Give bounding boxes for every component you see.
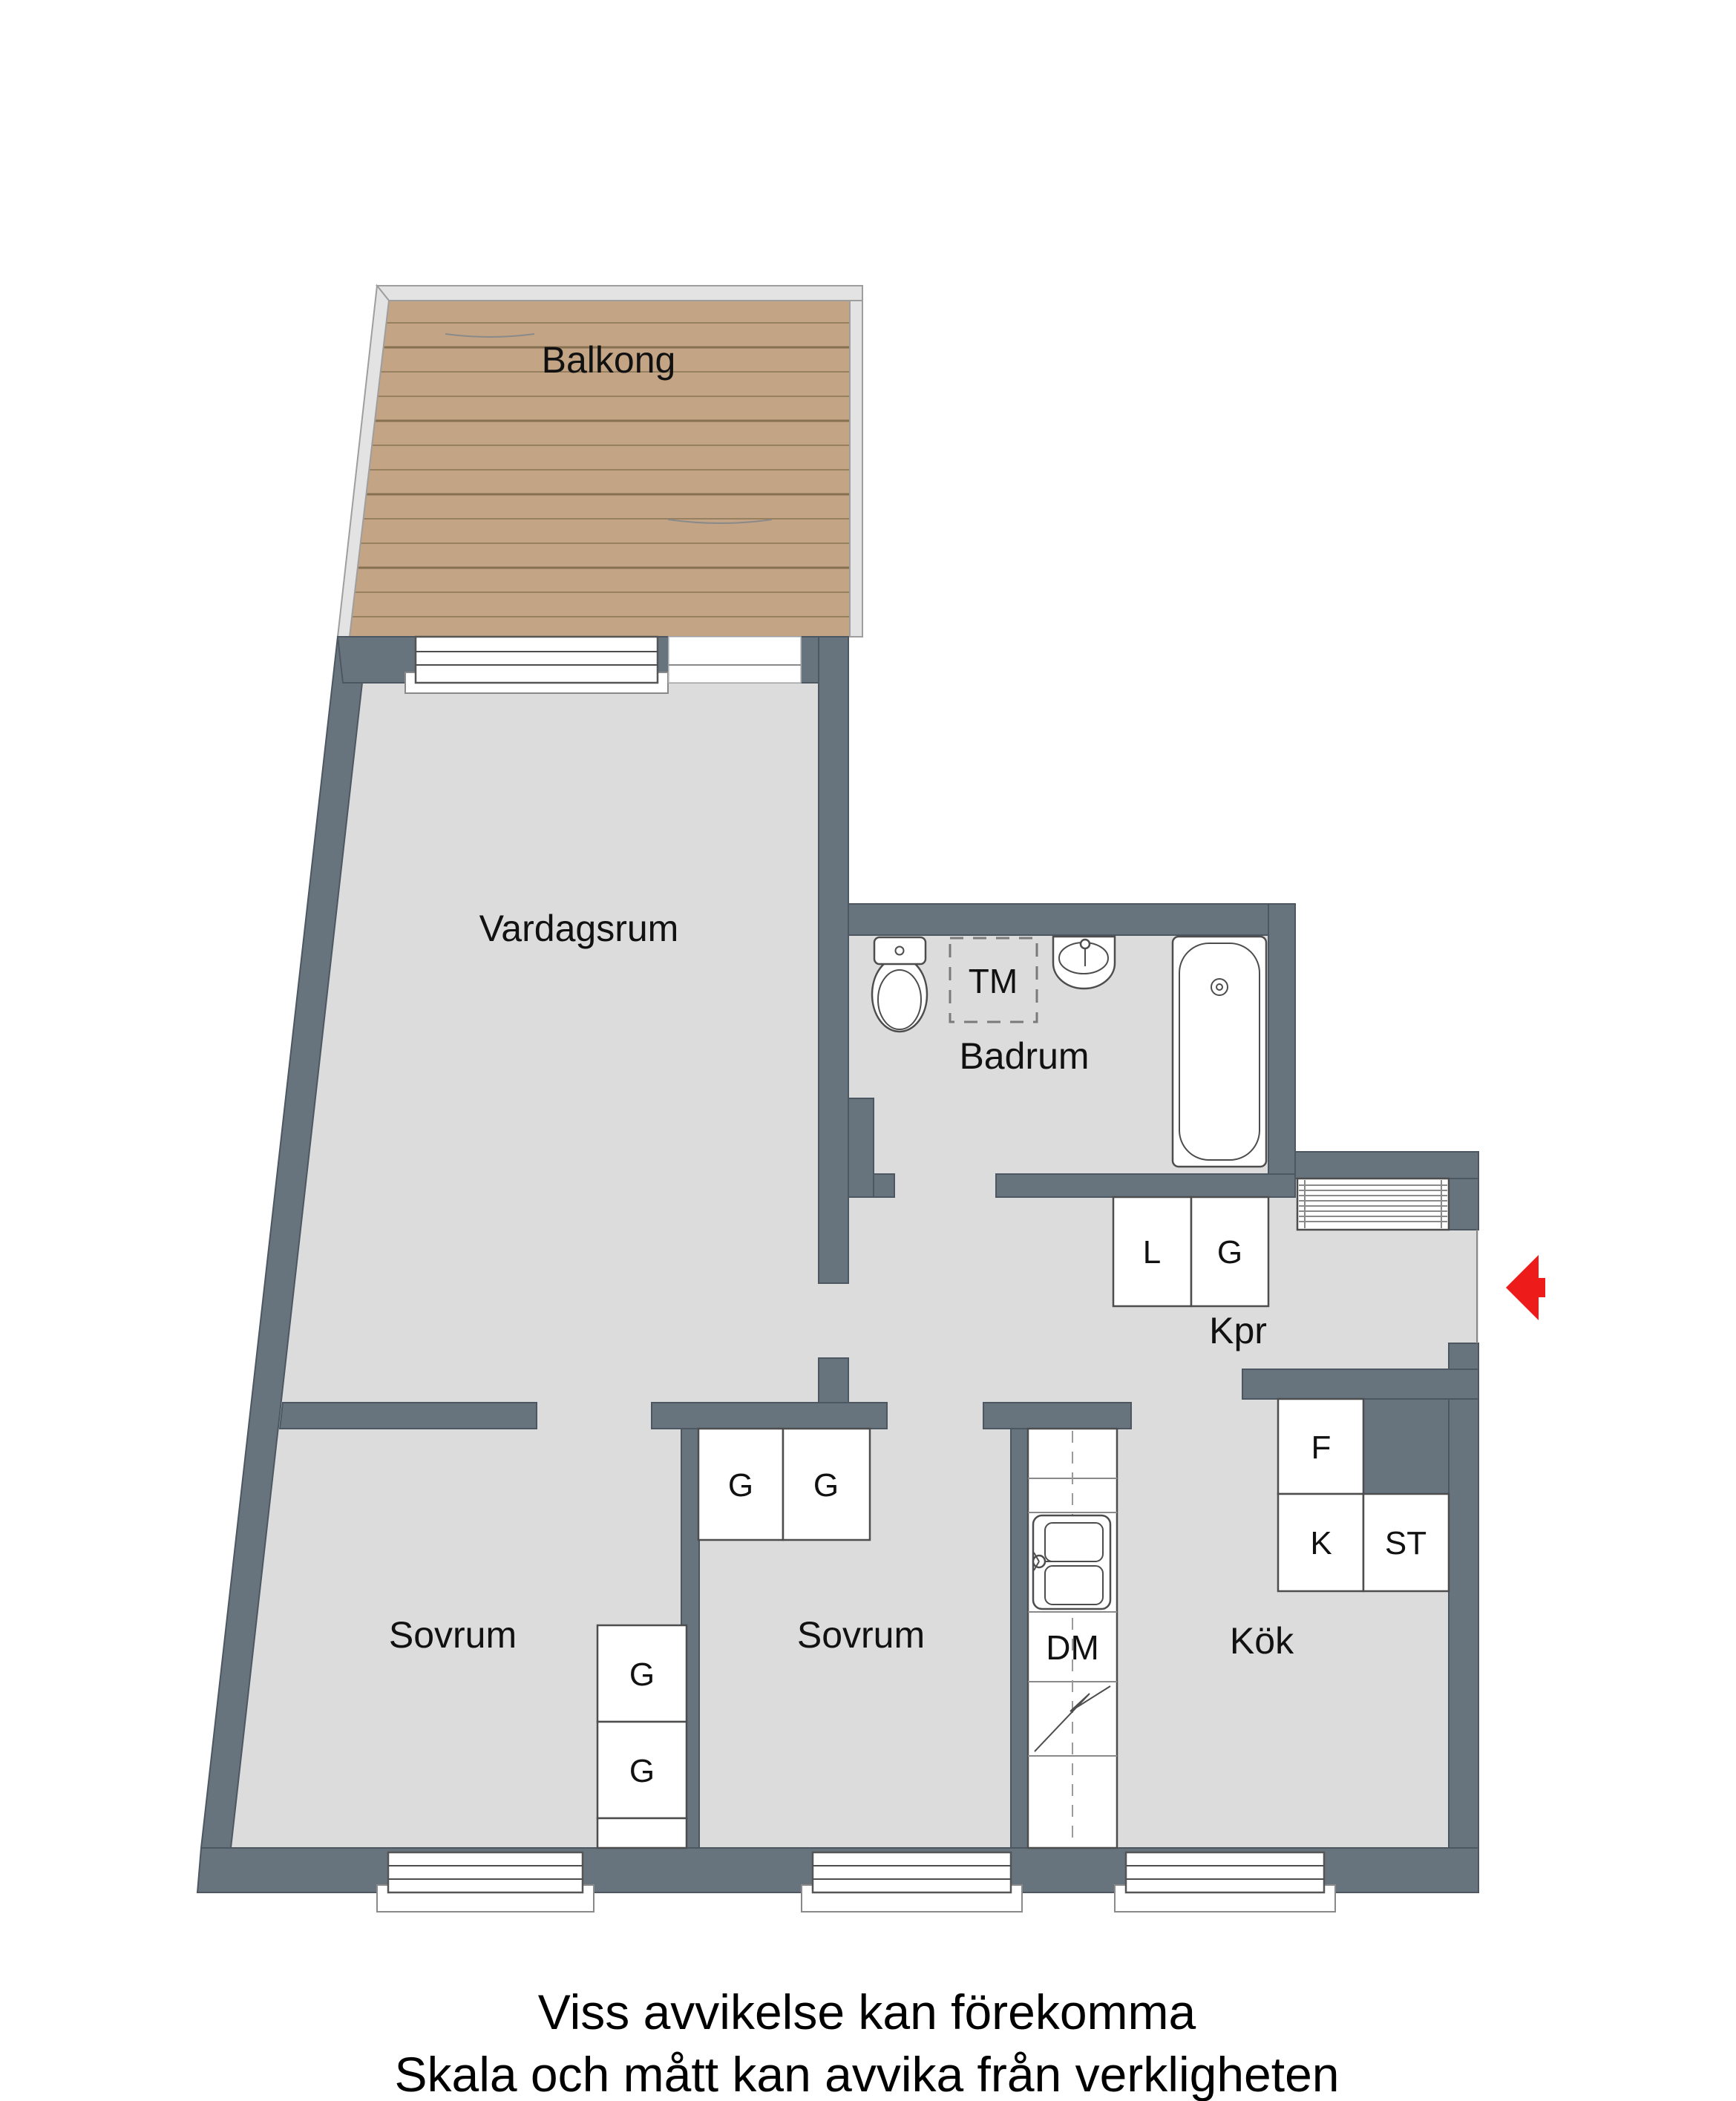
hallway-label: Kpr	[1209, 1310, 1267, 1351]
wall-hall-bedroom2	[652, 1403, 887, 1429]
wall-bathroom-top	[848, 904, 1295, 935]
wall-right-of-grille	[1449, 1179, 1478, 1230]
wall-livingroom-bedroom1	[280, 1403, 537, 1429]
fridge-label: F	[1311, 1429, 1332, 1466]
wardrobe-label-bedroom2-left: G	[728, 1467, 753, 1504]
wall-kitchen-corner-block	[1363, 1399, 1449, 1494]
bedroom1-label: Sovrum	[389, 1614, 517, 1656]
bathroom-sink-icon	[1053, 937, 1115, 989]
kitchen-label: Kök	[1230, 1620, 1294, 1662]
wardrobe-label-bedroom1-top: G	[629, 1656, 655, 1693]
ventilation-grille	[1297, 1179, 1449, 1230]
wall-hall-top-right	[1295, 1152, 1478, 1179]
livingroom-label: Vardagsrum	[479, 908, 679, 949]
livingroom-window	[416, 637, 658, 683]
linen-closet-label: L	[1143, 1234, 1161, 1271]
disclaimer-line1: Viss avvikelse kan förekomma	[538, 1984, 1196, 2039]
toilet-icon	[872, 937, 927, 1032]
wall-bathroom-stub	[848, 1098, 874, 1197]
wardrobe-filler-bedroom1	[597, 1818, 687, 1848]
washing-machine-label: TM	[969, 962, 1018, 1000]
kitchen-sink-icon	[1033, 1515, 1110, 1609]
balcony-railing-right	[850, 301, 862, 637]
wall-right-lower	[1449, 1343, 1478, 1892]
wall-bathroom-stub-step	[874, 1174, 894, 1197]
balcony	[327, 286, 862, 637]
wall-kitchen-column-left	[1011, 1429, 1028, 1848]
cleaning-closet-label: ST	[1385, 1525, 1427, 1561]
bedroom2-window	[813, 1852, 1011, 1892]
disclaimer-line2: Skala och mått kan avvika från verklighe…	[395, 2047, 1340, 2101]
bathroom-label: Badrum	[959, 1035, 1089, 1077]
wall-bathroom-right	[1268, 904, 1295, 1179]
wall-bathroom-bottom	[996, 1174, 1295, 1197]
wardrobe-label-bedroom2-right: G	[813, 1467, 839, 1504]
bedroom2-label: Sovrum	[797, 1614, 925, 1656]
floorplan-drawing: Balkong Vardagsrum Badrum TM Kpr Sovrum …	[0, 0, 1736, 2101]
wall-kitchen-top	[1242, 1369, 1478, 1399]
wall-kitchen-column-top	[983, 1403, 1131, 1429]
bedroom1-window	[388, 1852, 583, 1892]
balcony-label: Balkong	[542, 339, 676, 381]
balcony-railing-top	[377, 286, 862, 301]
dishwasher-label: DM	[1046, 1628, 1099, 1667]
wardrobe-label-bedroom1-bottom: G	[629, 1753, 655, 1789]
balcony-door-opening	[669, 637, 801, 683]
disclaimer: Viss avvikelse kan förekomma Skala och m…	[395, 1984, 1340, 2101]
floorplan-page: Balkong Vardagsrum Badrum TM Kpr Sovrum …	[0, 0, 1736, 2101]
freezer-label: K	[1310, 1525, 1332, 1561]
kitchen-window	[1126, 1852, 1324, 1892]
wall-livingroom-right	[819, 637, 848, 1283]
bathtub-icon	[1173, 937, 1266, 1167]
wardrobe-label-hall: G	[1217, 1234, 1242, 1271]
entrance-arrow-icon	[1506, 1255, 1545, 1320]
